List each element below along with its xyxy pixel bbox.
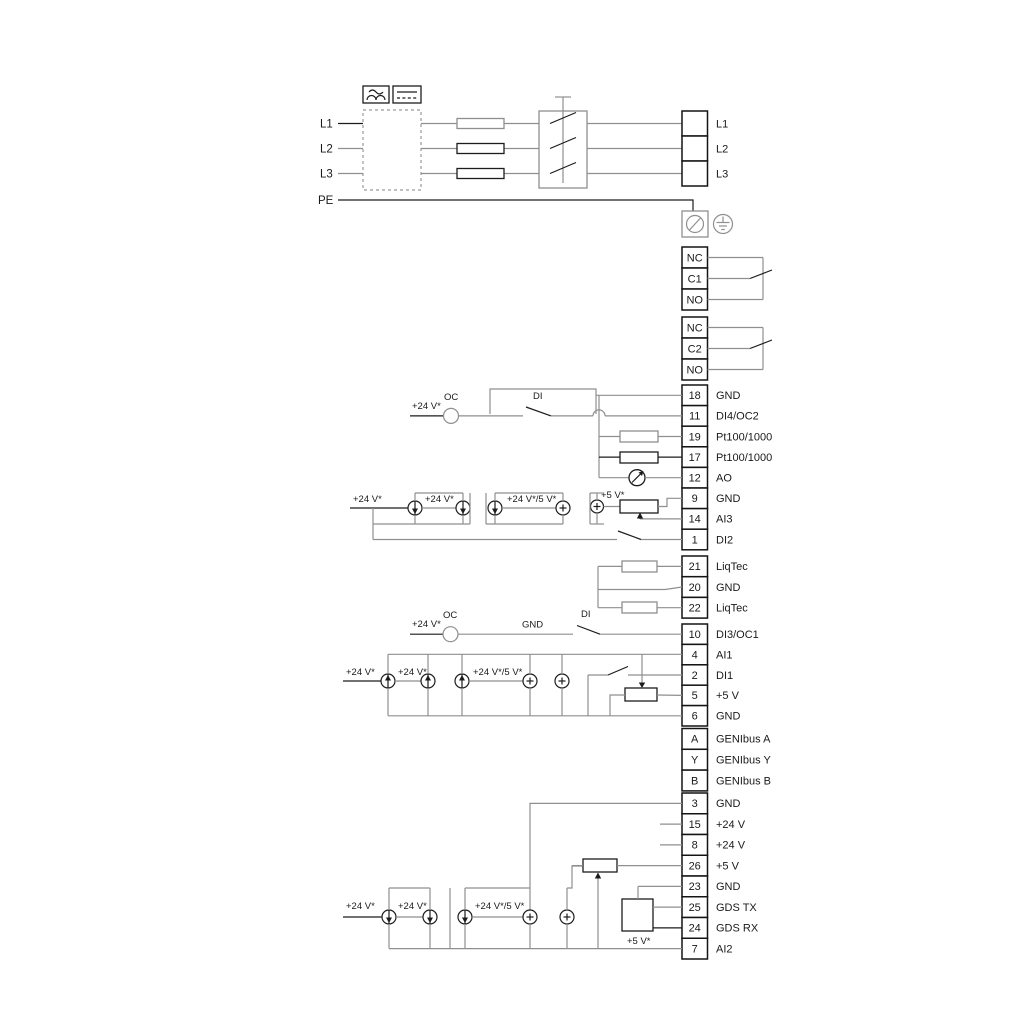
liqtec-sensor-circuit <box>598 561 682 613</box>
terminal-24-number: 24 <box>689 923 701 935</box>
terminal-25-label: GDS TX <box>716 902 757 914</box>
terminal-10-number: 10 <box>689 629 701 641</box>
terminal-1-number: 1 <box>692 534 698 546</box>
earth-ground-icon <box>714 215 733 234</box>
terminal-20-label: GND <box>716 582 741 594</box>
switch-contact <box>608 667 628 676</box>
rfi-filter-box <box>363 110 421 190</box>
mains-wiring <box>338 124 682 174</box>
di-label: DI <box>533 391 543 402</box>
terminal-11-number: 11 <box>689 411 700 423</box>
terminal-a-number: A <box>691 734 699 746</box>
resistor <box>622 561 657 572</box>
terminal-21-label: LiqTec <box>716 561 748 573</box>
mains-in-pe-label: PE <box>318 195 334 207</box>
wiring-diagram-page: L1 L2 L3 PE <box>0 0 1024 1024</box>
terminal-14-label: AI3 <box>716 514 733 526</box>
di-label: DI <box>581 609 591 620</box>
terminal-4-number: 4 <box>692 649 698 661</box>
terminal-6-label: GND <box>716 711 741 723</box>
genibus-terminals: A Y B <box>682 729 708 791</box>
mains-output-terminals <box>682 111 708 186</box>
relay-2-terminals: NC C2 NO <box>682 317 772 380</box>
mains-out-l1-label: L1 <box>716 118 728 130</box>
v24-label: +24 V* <box>412 619 441 630</box>
terminal-23-label: GND <box>716 881 741 893</box>
terminal-19-number: 19 <box>689 431 701 443</box>
di3-input-circuit: +24 V* OC GND DI <box>410 609 682 642</box>
relay-1-terminals: NC C1 NO <box>682 247 772 310</box>
terminal-11-label: DI4/OC2 <box>716 411 759 423</box>
terminal-9-label: GND <box>716 493 741 505</box>
terminal-12-number: 12 <box>689 473 701 485</box>
terminal-15-label: +24 V <box>716 819 746 831</box>
oc-output-icon <box>444 408 459 423</box>
terminal-4-label: AI1 <box>716 649 733 661</box>
pe-wiring <box>338 200 708 237</box>
v24-label: +24 V* <box>398 901 427 912</box>
io-block-3-terminals: 3 15 8 26 23 25 24 7 <box>682 793 708 959</box>
relay1-no: NO <box>686 294 703 306</box>
relay1-c1: C1 <box>688 273 702 285</box>
terminal-26-label: +5 V <box>716 860 740 872</box>
terminal-24-label: GDS RX <box>716 923 759 935</box>
relay2-c2: C2 <box>688 343 702 355</box>
terminal-17-number: 17 <box>689 452 701 464</box>
pt100-sensor-1 <box>599 431 682 442</box>
wiring-diagram: L1 L2 L3 PE <box>0 0 1024 1024</box>
relay1-nc: NC <box>687 252 703 264</box>
terminal-23-number: 23 <box>689 881 701 893</box>
switch-contact <box>618 531 641 540</box>
resistor <box>622 602 657 613</box>
mains-in-l2-label: L2 <box>320 144 333 156</box>
terminal-18-number: 18 <box>689 390 701 402</box>
terminal-b-number: B <box>691 775 698 787</box>
terminal-22-number: 22 <box>689 603 701 615</box>
terminal-3-label: GND <box>716 798 741 810</box>
terminal-19-label: Pt100/1000 <box>716 431 772 443</box>
source-group-ai3: +24 V* +24 V* +24 V*/5 V* <box>350 493 570 540</box>
terminal-2-number: 2 <box>692 670 698 682</box>
io-block-1-terminals: 18 11 19 17 12 9 14 1 <box>682 385 708 550</box>
terminal-2-label: DI1 <box>716 670 733 682</box>
v5-label: +5 V* <box>627 936 651 947</box>
terminal-8-label: +24 V <box>716 840 746 852</box>
v24v5-label: +24 V*/5 V* <box>475 901 525 912</box>
v24-label: +24 V* <box>346 667 375 678</box>
v24v5-label: +24 V*/5 V* <box>507 494 557 505</box>
terminal-22-label: LiqTec <box>716 603 748 615</box>
terminal-6-number: 6 <box>692 711 698 723</box>
fuse-l2 <box>457 144 504 154</box>
terminal-18-label: GND <box>716 390 741 402</box>
terminal-5-number: 5 <box>692 690 698 702</box>
relay2-nc: NC <box>687 322 703 334</box>
mains-out-l3-label: L3 <box>716 168 728 180</box>
gds-module-box <box>622 899 653 931</box>
fuse-l3 <box>457 169 504 179</box>
switch-contact <box>577 626 600 635</box>
terminal-26-number: 26 <box>689 860 701 872</box>
resistor <box>620 431 658 442</box>
v24-label: +24 V* <box>425 494 454 505</box>
mains-in-l1-label: L1 <box>320 119 333 131</box>
source-group-ai1: +24 V* +24 V* +24 V*/5 V* <box>343 654 569 716</box>
terminal-1-label: DI2 <box>716 534 733 546</box>
potentiometer-ai3 <box>620 498 682 519</box>
pt100-sensor-2 <box>599 452 682 463</box>
relay2-no: NO <box>686 364 703 376</box>
terminal-y-label: GENIbus Y <box>716 755 771 767</box>
terminal-8-number: 8 <box>692 840 698 852</box>
oc-output-icon <box>443 627 458 642</box>
gnd-wire-label: GND <box>522 620 543 631</box>
terminal-25-number: 25 <box>689 902 701 914</box>
gds-module-circuit: +5 V* <box>622 886 682 947</box>
terminal-b-label: GENIbus B <box>716 775 771 787</box>
v24-label: +24 V* <box>412 401 441 412</box>
potentiometer <box>583 859 617 872</box>
terminal-17-label: Pt100/1000 <box>716 452 772 464</box>
terminal-3-number: 3 <box>692 798 698 810</box>
mains-in-l3-label: L3 <box>320 169 333 181</box>
gnd-return-wire <box>530 803 682 910</box>
oc-label: OC <box>444 392 458 403</box>
ac-symbol-icon <box>363 86 389 103</box>
switch-contact <box>526 407 551 416</box>
terminal-y-number: Y <box>691 755 699 767</box>
oc-label: OC <box>443 610 457 621</box>
terminal-10-label: DI3/OC1 <box>716 629 759 641</box>
potentiometer <box>625 688 657 701</box>
terminal-20-number: 20 <box>689 582 701 594</box>
terminal-7-number: 7 <box>692 943 698 955</box>
fuse-l1 <box>457 119 504 129</box>
terminal-9-number: 9 <box>692 493 698 505</box>
terminal-a-label: GENIbus A <box>716 734 771 746</box>
terminal-7-label: AI2 <box>716 943 733 955</box>
resistor <box>620 452 658 463</box>
analog-output-meter-icon <box>599 470 682 486</box>
liqtec-terminals: 21 20 22 <box>682 556 708 618</box>
v24v5-label: +24 V*/5 V* <box>473 667 523 678</box>
terminal-21-number: 21 <box>689 561 701 573</box>
terminal-15-number: 15 <box>689 819 701 831</box>
terminal-5-label: +5 V <box>716 690 740 702</box>
dc-symbol-icon <box>393 86 421 103</box>
di2-switch-circuit <box>373 531 682 540</box>
v24-label: +24 V* <box>353 494 382 505</box>
v24-label: +24 V* <box>346 901 375 912</box>
disconnect-switch <box>539 97 587 188</box>
mains-out-l2-label: L2 <box>716 143 728 155</box>
io-block-2-terminals: 10 4 2 5 6 <box>682 624 708 726</box>
terminal-12-label: AO <box>716 473 732 485</box>
terminal-14-number: 14 <box>689 514 701 526</box>
